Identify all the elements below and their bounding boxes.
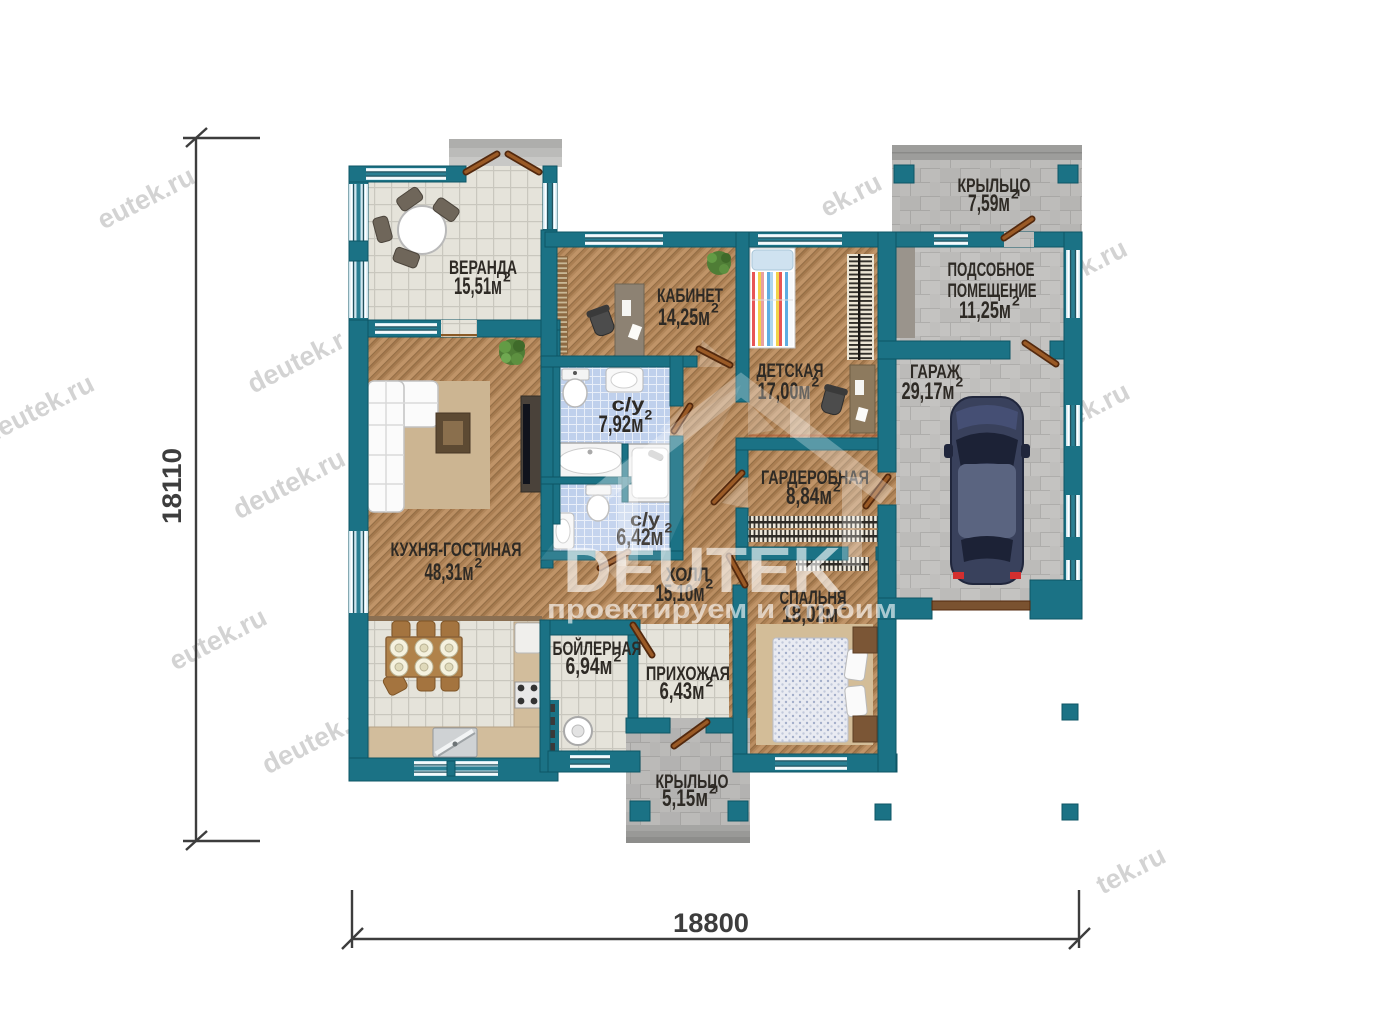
- svg-text:6,43м: 6,43м: [660, 678, 705, 705]
- svg-text:ПОДСОБНОЕ: ПОДСОБНОЕ: [948, 260, 1035, 281]
- svg-text:КУХНЯ-ГОСТИНАЯ: КУХНЯ-ГОСТИНАЯ: [391, 540, 522, 561]
- svg-text:7,59м: 7,59м: [968, 190, 1010, 217]
- svg-text:14,25м: 14,25м: [658, 304, 710, 331]
- svg-text:48,31м: 48,31м: [425, 559, 474, 586]
- svg-text:18800: 18800: [673, 908, 749, 938]
- svg-text:15,51м: 15,51м: [454, 273, 502, 300]
- svg-text:2: 2: [503, 269, 511, 285]
- svg-text:11,25м: 11,25м: [959, 297, 1011, 324]
- svg-text:18110: 18110: [157, 448, 187, 524]
- svg-text:2: 2: [706, 674, 714, 690]
- svg-text:2: 2: [1012, 293, 1020, 309]
- svg-text:2: 2: [614, 649, 622, 665]
- svg-text:2: 2: [833, 479, 841, 495]
- svg-text:2: 2: [956, 374, 964, 390]
- svg-text:2: 2: [1011, 186, 1019, 202]
- svg-text:2: 2: [475, 555, 483, 571]
- svg-text:6,94м: 6,94м: [566, 653, 613, 680]
- svg-text:проектируем и строим: проектируем и строим: [547, 594, 897, 624]
- svg-text:2: 2: [812, 374, 820, 390]
- svg-text:7,92м: 7,92м: [599, 411, 644, 438]
- svg-text:2: 2: [711, 300, 719, 316]
- svg-text:2: 2: [709, 781, 717, 797]
- svg-text:2: 2: [645, 407, 653, 423]
- svg-text:5,15м: 5,15м: [662, 785, 708, 812]
- svg-text:8,84м: 8,84м: [786, 483, 832, 510]
- svg-text:29,17м: 29,17м: [902, 378, 955, 405]
